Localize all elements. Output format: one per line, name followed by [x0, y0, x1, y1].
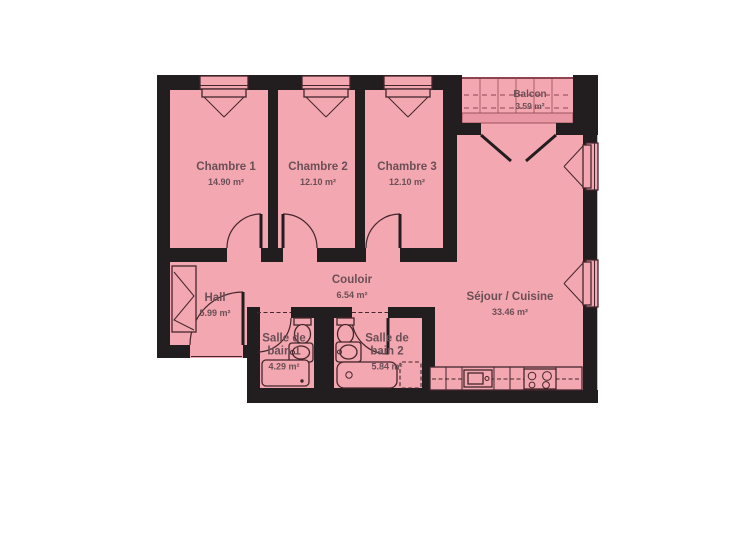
room-name: Séjour / Cuisine [467, 291, 554, 304]
room-name: Chambre 2 [288, 161, 347, 174]
room-label-chambre-3: Chambre 3 12.10 m² [377, 161, 436, 187]
room-label-chambre-1: Chambre 1 14.90 m² [196, 161, 255, 187]
room-label-chambre-2: Chambre 2 12.10 m² [288, 161, 347, 187]
room-label-hall: Hall 5.99 m² [199, 292, 230, 318]
room-area: 14.90 m² [208, 177, 244, 187]
room-name: Hall [204, 292, 225, 305]
room-area: 4.29 m² [268, 362, 299, 372]
room-name: Balcon [513, 89, 546, 100]
stove [524, 369, 556, 389]
room-area: 6.54 m² [336, 290, 367, 300]
floor-plan-drawing [0, 0, 750, 542]
toilet-bain-2 [337, 318, 354, 344]
room-area: 12.10 m² [300, 177, 336, 187]
room-name: Chambre 3 [377, 161, 436, 174]
room-label-salle-de-bain-2: Salle de bain 2 5.84 m² [358, 333, 416, 372]
room-label-salle-de-bain-1: Salle de bain 1 4.29 m² [255, 333, 313, 372]
room-name: Salle de bain 1 [255, 333, 313, 359]
room-name: Chambre 1 [196, 161, 255, 174]
room-label-sejour-cuisine: Séjour / Cuisine 33.46 m² [467, 291, 554, 317]
room-area: 12.10 m² [389, 177, 425, 187]
exterior-cutout-entry [157, 358, 247, 403]
room-area: 5.84 m² [371, 362, 402, 372]
balcony-threshold [462, 113, 573, 123]
room-area: 3.59 m² [515, 101, 544, 111]
closet-hall [172, 266, 196, 332]
kitchen-sink [464, 370, 492, 387]
room-name: Couloir [332, 274, 372, 287]
floor-plan: Chambre 1 14.90 m² Chambre 2 12.10 m² Ch… [0, 0, 750, 542]
room-label-couloir: Couloir 6.54 m² [332, 274, 372, 300]
room-area: 5.99 m² [199, 308, 230, 318]
room-area: 33.46 m² [492, 307, 528, 317]
room-name: Salle de bain 2 [358, 333, 416, 359]
room-label-balcon: Balcon 3.59 m² [513, 89, 546, 111]
kitchen-counter [430, 367, 582, 390]
